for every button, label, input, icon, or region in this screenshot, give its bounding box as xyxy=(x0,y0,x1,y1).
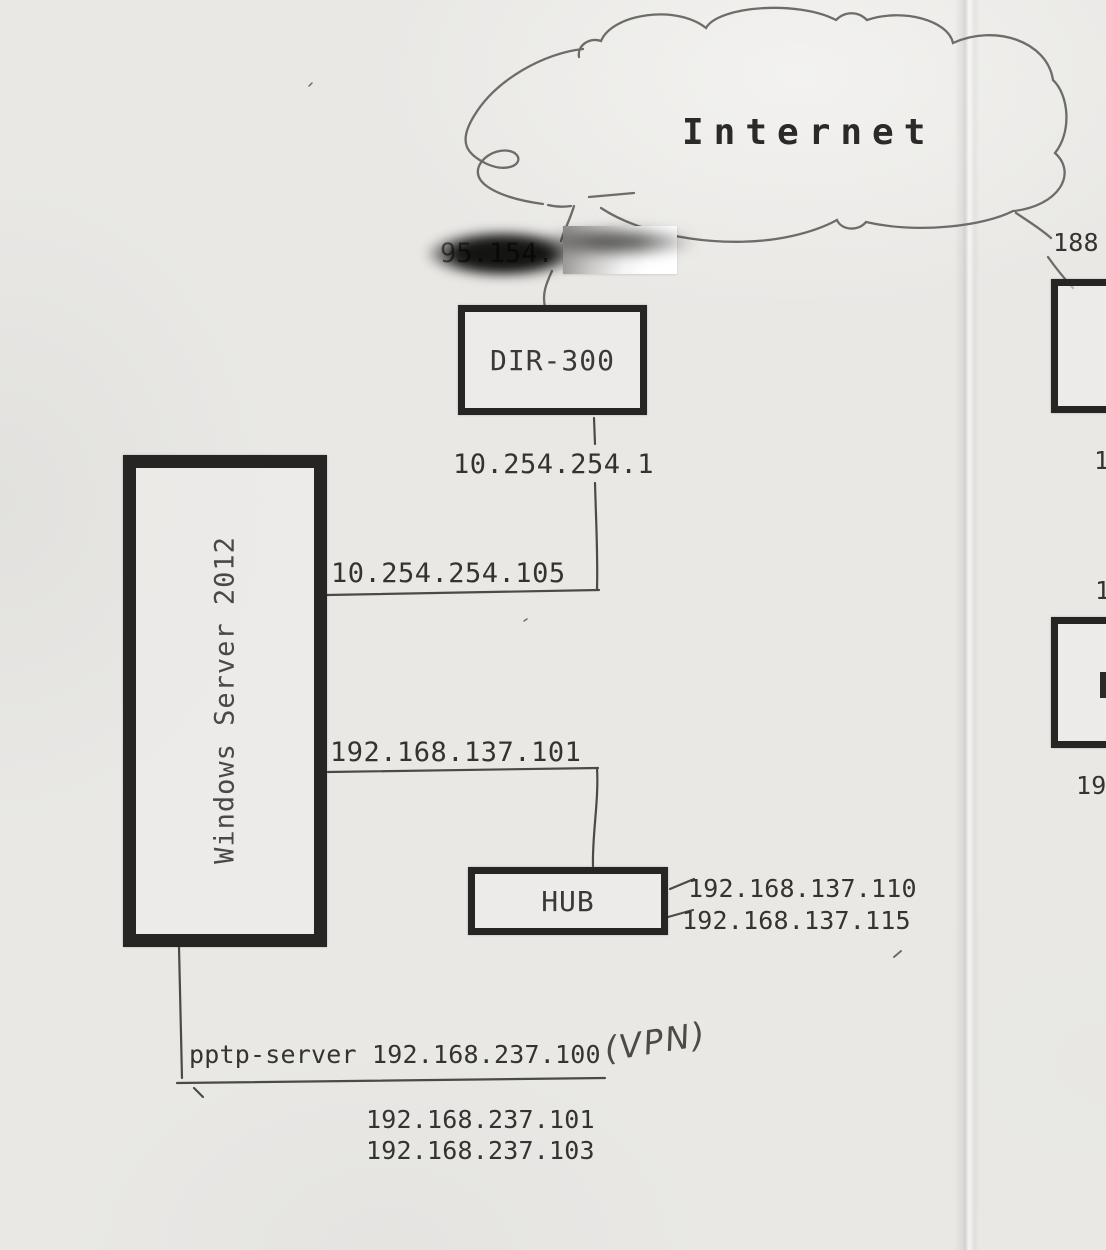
router-lan-ip: 10.254.254.1 xyxy=(453,449,654,480)
right-partial-text-1: 1 xyxy=(1094,446,1106,475)
router-box: DIR-300 xyxy=(458,305,647,415)
server-uplink-ip: 10.254.254.105 xyxy=(331,558,566,589)
server-pptp-line xyxy=(179,947,182,1078)
server-label: Windows Server 2012 xyxy=(210,536,241,864)
pptp-underline xyxy=(177,1078,605,1083)
wan-ip-redacted: 95.154. xyxy=(440,238,554,269)
hub-box: HUB xyxy=(468,867,668,935)
router-down-link xyxy=(594,418,595,444)
hub-client-ip-1: 192.168.137.110 xyxy=(688,874,917,903)
server-lan-line xyxy=(328,768,598,772)
isp2-ip-partial: 188 xyxy=(1053,228,1099,257)
isp2-router-box-partial xyxy=(1051,279,1106,413)
vpn-client-ip-2: 192.168.237.103 xyxy=(366,1136,595,1165)
vpn-client-ip-1: 192.168.237.101 xyxy=(366,1105,595,1134)
scanned-network-diagram: Internet 95.154. DIR-300 10.254.254.1 Wi… xyxy=(0,0,1106,1250)
router-label: DIR-300 xyxy=(490,344,615,377)
server-lan-ip: 192.168.137.101 xyxy=(330,737,581,768)
partial-letter-sliver xyxy=(1100,672,1106,698)
server-uplink-line xyxy=(327,590,599,595)
redaction-smear xyxy=(545,226,705,258)
pptp-server-label: pptp-server 192.168.237.100 xyxy=(189,1040,601,1069)
hub-client-ip-2: 192.168.137.115 xyxy=(682,906,911,935)
right-partial-text-3: 19 xyxy=(1076,771,1106,800)
hub-label: HUB xyxy=(541,885,595,918)
cloud-to-isp2-link xyxy=(1016,213,1051,238)
right-device-box-partial xyxy=(1051,617,1106,748)
right-partial-text-2: 1 xyxy=(1095,576,1106,605)
internet-label: Internet xyxy=(682,112,935,153)
